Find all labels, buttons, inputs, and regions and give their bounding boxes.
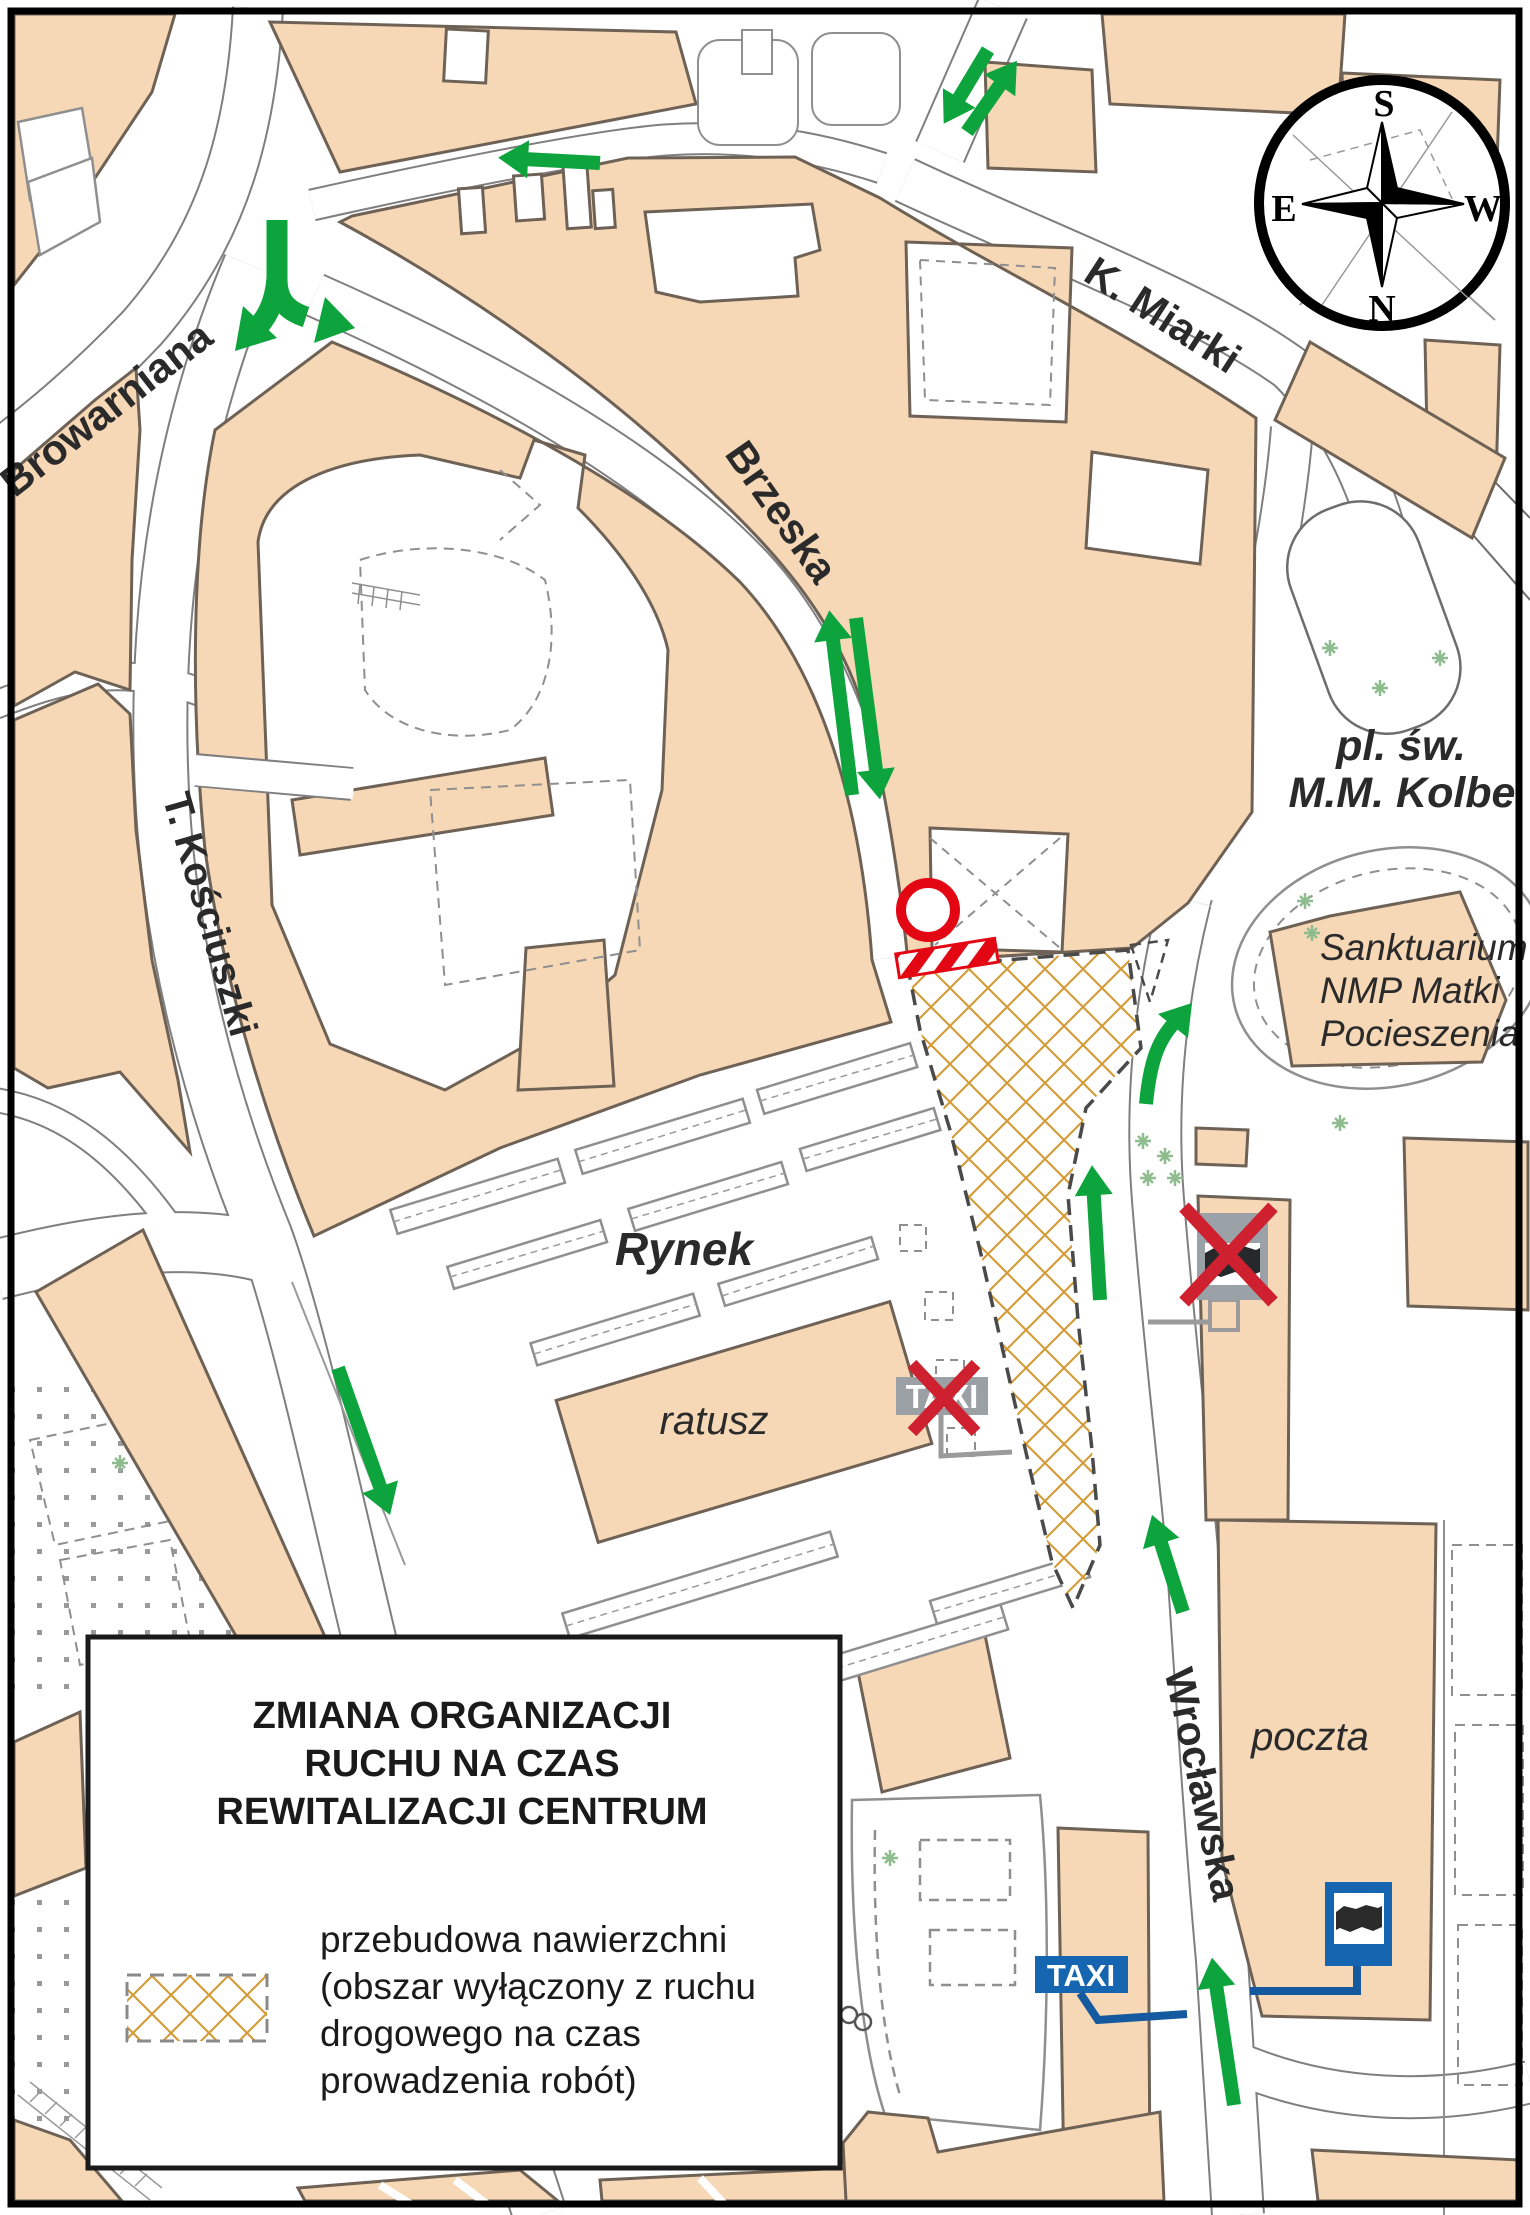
svg-text:TAXI: TAXI (1047, 1958, 1115, 1993)
svg-text:Pocieszenia: Pocieszenia (1320, 1013, 1520, 1054)
svg-text:prowadzenia robót): prowadzenia robót) (320, 2060, 637, 2101)
svg-text:Rynek: Rynek (615, 1223, 755, 1275)
svg-text:Sanktuarium: Sanktuarium (1320, 927, 1528, 968)
svg-text:przebudowa nawierzchni: przebudowa nawierzchni (320, 1919, 727, 1960)
svg-text:pl. św.: pl. św. (1335, 722, 1466, 770)
svg-text:N: N (1368, 288, 1395, 330)
svg-text:S: S (1373, 83, 1394, 125)
svg-text:ratusz: ratusz (660, 1399, 769, 1443)
svg-text:NMP Matki: NMP Matki (1320, 970, 1501, 1011)
svg-text:M.M. Kolbe: M.M. Kolbe (1289, 769, 1516, 817)
svg-text:RUCHU NA CZAS: RUCHU NA CZAS (304, 1743, 619, 1785)
svg-text:W: W (1464, 188, 1502, 230)
svg-text:drogowego na czas: drogowego na czas (320, 2013, 641, 2054)
svg-text:poczta: poczta (1250, 1715, 1369, 1759)
svg-text:E: E (1271, 188, 1296, 230)
svg-text:(obszar wyłączony z ruchu: (obszar wyłączony z ruchu (320, 1966, 756, 2007)
svg-text:REWITALIZACJI CENTRUM: REWITALIZACJI CENTRUM (216, 1791, 707, 1833)
svg-text:ZMIANA ORGANIZACJI: ZMIANA ORGANIZACJI (253, 1695, 672, 1737)
